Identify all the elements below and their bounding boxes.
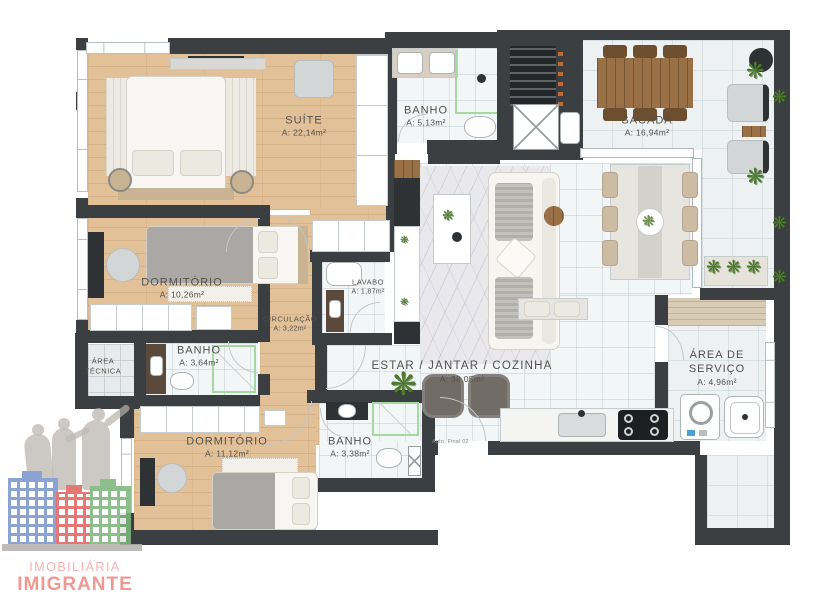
burner — [650, 427, 659, 436]
room-label-lavabo: LAVABO A: 1,87m² — [351, 278, 384, 297]
bench-cushion — [554, 301, 580, 317]
shower-head-icon — [477, 74, 486, 83]
sofa-pillow — [495, 237, 537, 279]
shower-door — [408, 446, 421, 476]
room-area: A: 16,94m² — [621, 128, 672, 139]
room-area: A: 10,26m² — [141, 290, 223, 301]
room-name: CIRCULAÇÃO — [263, 315, 317, 325]
cooktop — [618, 410, 668, 440]
tv-sideboard — [394, 160, 420, 178]
burner — [624, 427, 633, 436]
room-area: A: 22,14m² — [282, 128, 327, 139]
dorm1-bench — [196, 306, 232, 330]
banho-social-sink — [150, 356, 163, 376]
room-label-dormitorio1: DORMITÓRIO A: 10,26m² — [141, 275, 223, 300]
room-area: A: 11,12m² — [186, 449, 268, 460]
dining-chair — [602, 172, 618, 198]
wall — [258, 374, 270, 395]
unit-note: Apto. Final 02 — [432, 439, 469, 445]
plant-icon: ❋ — [746, 258, 761, 276]
balcony-chair — [633, 45, 657, 58]
decor-bowl — [452, 232, 462, 242]
laundry-sink — [724, 396, 764, 438]
grill-sink — [560, 112, 580, 144]
suite-closet — [312, 220, 390, 252]
room-label-banho2: BANHO A: 3,38m² — [328, 434, 372, 459]
wall — [428, 152, 500, 164]
plant-icon: ❋ — [442, 208, 454, 222]
room-area: A: 38,05m² — [371, 374, 552, 385]
wall — [312, 333, 392, 345]
flower-icon: ❋ — [642, 214, 655, 229]
suite-dresser — [170, 58, 266, 70]
elevator-shaft — [513, 104, 559, 150]
room-name: LAVABO — [351, 278, 384, 288]
washer-control — [687, 430, 695, 436]
room-label-banho-suite: BANHO A: 5,13m² — [404, 103, 448, 128]
suite-armchair — [294, 60, 334, 98]
room-area: A: 3,38m² — [328, 449, 372, 460]
logo-text-imigrante: IMIGRANTE — [0, 574, 150, 596]
room-label-area-servico: ÁREA DE SERVIÇO A: 4,96m² — [686, 348, 748, 388]
wall — [315, 478, 425, 492]
tv-panel — [394, 178, 420, 226]
dorm1-pillow — [258, 257, 278, 279]
burner — [624, 414, 633, 423]
statue-arm — [103, 404, 131, 428]
room-label-circulacao: CIRCULAÇÃO A: 3,22m² — [263, 315, 317, 334]
lavabo-sink — [329, 300, 341, 318]
plant-icon: ❋ — [400, 298, 408, 308]
plant-icon: ❋ — [772, 88, 787, 106]
banho-suite-sink — [429, 52, 455, 74]
lounge-chair — [727, 84, 769, 122]
banho-suite-shower — [455, 50, 497, 114]
dining-chair — [682, 206, 698, 232]
wall — [134, 333, 146, 408]
balcony-chair — [663, 45, 687, 58]
room-area: A: 3,22m² — [263, 324, 317, 333]
statue-head — [58, 418, 70, 430]
room-name: BANHO — [328, 434, 372, 448]
wall — [168, 38, 390, 54]
wall — [258, 333, 270, 342]
window — [77, 218, 88, 320]
dorm1-desk — [88, 232, 104, 298]
room-name: ÁREA DE SERVIÇO — [686, 348, 748, 377]
dorm1-pillow — [258, 231, 278, 253]
wall — [120, 530, 438, 545]
plant-icon: ❋ — [400, 236, 408, 246]
suite-nightstand-lamp — [108, 168, 132, 192]
room-area: A: 1,87m² — [351, 287, 384, 296]
window — [77, 50, 88, 192]
dorm1-wardrobe — [90, 304, 192, 331]
room-area: A: 5,13m² — [404, 118, 448, 129]
room-name: SACADA — [621, 113, 672, 127]
plant-icon: ❋ — [746, 166, 764, 188]
wall — [695, 455, 707, 533]
wall — [88, 205, 270, 218]
plant-icon: ❋ — [772, 214, 787, 232]
dining-chair — [602, 206, 618, 232]
wall — [700, 288, 774, 300]
banho2-toilet — [376, 448, 402, 468]
room-label-area-tecnica: ÁREA TÉCNICA — [78, 356, 128, 376]
suite-nightstand-lamp — [230, 170, 254, 194]
room-name: BANHO — [404, 103, 448, 117]
wall — [655, 295, 668, 325]
suite-headboard — [118, 188, 234, 200]
room-area: A: 3,64m² — [177, 358, 221, 369]
statue-head — [32, 424, 44, 436]
plant-icon: ❋ — [726, 258, 741, 276]
wall — [774, 30, 790, 545]
wall — [385, 32, 499, 48]
room-label-suite: SUÍTE A: 22,14m² — [282, 113, 327, 138]
dorm2-pillow — [292, 477, 310, 499]
floor-plan: ❋ ❋ ❋ ❋ ❋ ❋ ❋ ❋ ❋ ❋ ❋ ❋ ❋ — [0, 0, 821, 600]
banho-suite-sink — [397, 52, 423, 74]
room-name: ESTAR / JANTAR / COZINHA — [371, 359, 552, 374]
room-name: BANHO — [177, 343, 221, 357]
suite-wardrobe — [356, 54, 388, 206]
terrace-floor — [707, 455, 774, 530]
sofa-cushion — [495, 183, 533, 241]
banho-social-toilet — [170, 372, 194, 390]
suite-pillow — [132, 150, 174, 176]
window — [86, 42, 170, 54]
room-name: SUÍTE — [282, 113, 327, 127]
room-label-estar-jantar-cozinha: ESTAR / JANTAR / COZINHA A: 38,05m² — [371, 359, 552, 385]
banho-suite-toilet — [464, 116, 496, 138]
coffee-table — [433, 194, 471, 264]
logo-building-red — [56, 492, 93, 545]
washer-control — [699, 430, 707, 436]
logo-base — [2, 544, 142, 551]
logo-text-imobiliaria: IMOBILIÁRIA — [0, 560, 150, 574]
side-table — [544, 206, 564, 226]
logo-building-green — [90, 486, 131, 545]
room-label-dormitorio2: DORMITÓRIO A: 11,12m² — [186, 434, 268, 459]
plant-icon: ❋ — [746, 60, 764, 82]
wall — [488, 441, 700, 455]
laundry-faucet — [742, 414, 748, 420]
plant-icon: ❋ — [772, 268, 787, 286]
skewer-handles — [558, 48, 563, 106]
balcony-chair — [603, 45, 627, 58]
dorm2-pillow — [292, 503, 310, 525]
room-name: DORMITÓRIO — [186, 434, 268, 448]
wall-pier — [76, 198, 88, 218]
plant-icon: ❋ — [706, 258, 721, 276]
sideboard-base — [394, 322, 420, 344]
wall-pier — [76, 320, 88, 334]
kitchen-faucet — [578, 410, 585, 417]
room-label-sacada: SACADA A: 16,94m² — [621, 113, 672, 138]
sliding-glass-door — [580, 148, 694, 158]
dorm1-chair — [106, 248, 140, 282]
service-area-deck — [668, 298, 766, 326]
dorm2-chair — [157, 463, 187, 493]
balcony-dining-table — [597, 58, 693, 108]
washing-machine — [680, 394, 720, 440]
dorm2-rug — [222, 458, 298, 473]
barbecue-grill — [510, 46, 556, 106]
banho2-shower — [372, 402, 419, 436]
logo-building-blue — [8, 478, 58, 545]
suite-pillow — [180, 150, 222, 176]
dining-chair — [682, 172, 698, 198]
washer-drum — [689, 401, 713, 425]
dorm2-duvet — [213, 473, 275, 529]
lounge-table — [742, 126, 766, 137]
dining-chair — [602, 240, 618, 266]
bench-cushion — [524, 301, 550, 317]
sofa — [488, 172, 560, 350]
room-area: A: 4,96m² — [686, 377, 748, 388]
room-name: ÁREA TÉCNICA — [78, 356, 128, 376]
imigrante-logo: IMOBILIÁRIA IMIGRANTE — [0, 404, 160, 600]
room-name: DORMITÓRIO — [141, 275, 223, 289]
statue-head — [92, 408, 105, 421]
dining-chair — [682, 240, 698, 266]
wall — [695, 528, 790, 545]
burner — [650, 414, 659, 423]
window — [765, 342, 775, 428]
room-label-banho-social: BANHO A: 3,64m² — [177, 343, 221, 368]
wall — [583, 30, 774, 40]
